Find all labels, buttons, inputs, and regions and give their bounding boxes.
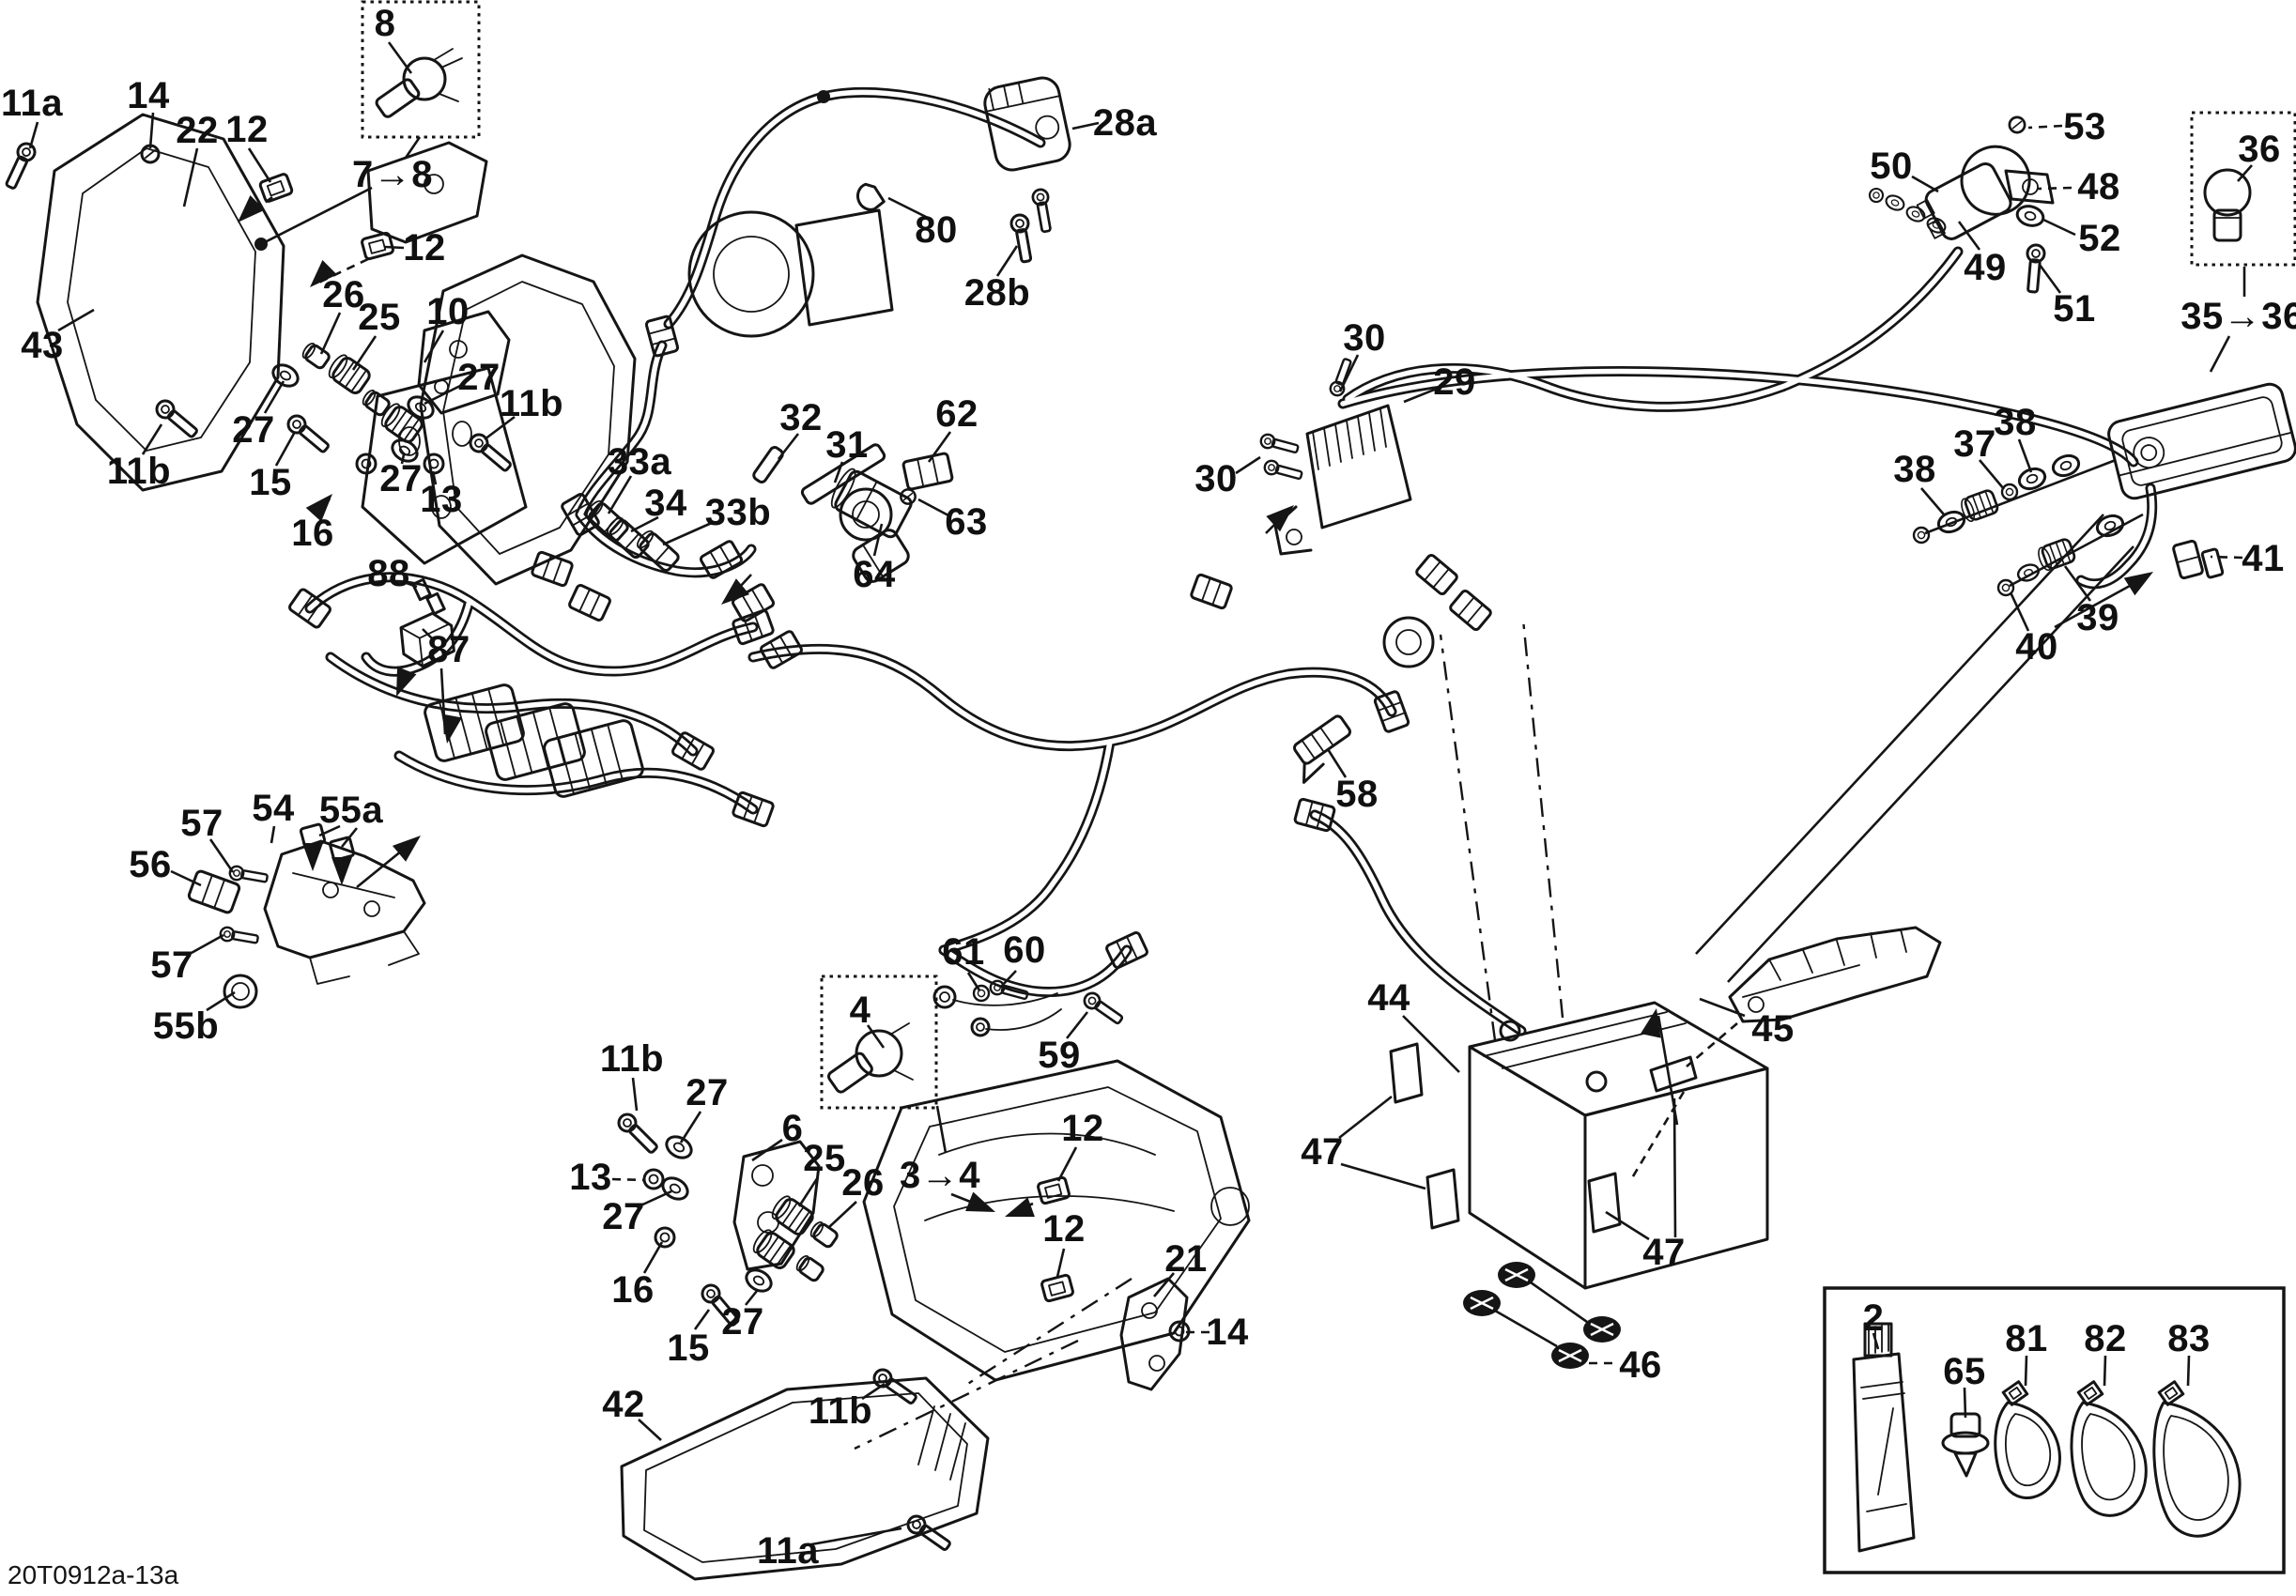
- part-callout: 12: [403, 229, 446, 267]
- part-callout: 47: [1642, 1234, 1686, 1271]
- part-callout: 10: [426, 293, 470, 330]
- callout-layer: 11a14221287→81243262510272711b11b1527131…: [0, 0, 2296, 1596]
- part-callout: 53: [2063, 108, 2106, 146]
- part-callout: 87: [427, 631, 470, 668]
- part-callout: 6: [782, 1110, 804, 1147]
- part-callout: 11a: [757, 1532, 819, 1570]
- part-callout: 88: [367, 555, 410, 592]
- part-callout: 34: [644, 484, 687, 522]
- part-callout: 33a: [608, 443, 671, 481]
- part-callout: 12: [1042, 1210, 1086, 1248]
- part-callout: 55b: [153, 1007, 219, 1045]
- part-callout: 12: [225, 111, 269, 148]
- part-callout: 33b: [705, 494, 771, 531]
- part-callout: 29: [1433, 363, 1476, 401]
- part-callout: 81: [2005, 1320, 2048, 1358]
- part-callout: 44: [1367, 979, 1410, 1017]
- part-callout: 37: [1953, 425, 1996, 463]
- part-callout: 64: [853, 556, 896, 593]
- part-callout: 2: [1863, 1299, 1885, 1337]
- part-callout: 38: [1994, 404, 2037, 441]
- parts-diagram-page: 11a14221287→81243262510272711b11b1527131…: [0, 0, 2296, 1596]
- part-callout: 15: [667, 1329, 710, 1367]
- part-callout: 32: [779, 399, 823, 437]
- part-callout: 59: [1038, 1036, 1081, 1074]
- sheet-code: 20T0912a-13a: [8, 1560, 178, 1590]
- part-callout: 28a: [1093, 104, 1157, 142]
- part-callout: 27: [457, 359, 501, 396]
- part-callout: 82: [2084, 1320, 2127, 1358]
- part-callout: 49: [1964, 249, 2007, 286]
- part-callout: 42: [602, 1386, 645, 1423]
- part-callout: 16: [611, 1271, 655, 1309]
- part-callout: 61: [942, 933, 985, 971]
- part-callout: 11b: [500, 385, 563, 422]
- part-callout: 36: [2238, 130, 2281, 168]
- part-callout: 27: [686, 1074, 729, 1112]
- part-callout: 11a: [1, 84, 63, 122]
- part-callout: 38: [1893, 451, 1936, 488]
- part-callout: 25: [803, 1140, 846, 1177]
- part-callout: 30: [1194, 460, 1238, 498]
- part-callout: 46: [1619, 1346, 1662, 1384]
- part-callout: 50: [1870, 147, 1913, 185]
- part-callout: 8: [375, 5, 396, 42]
- part-callout: 11b: [107, 453, 171, 490]
- part-callout: 4: [850, 991, 871, 1029]
- part-callout: 60: [1003, 931, 1046, 969]
- part-callout: 16: [291, 514, 334, 552]
- part-callout: 57: [150, 946, 193, 984]
- part-callout: 11b: [809, 1392, 872, 1430]
- part-callout: 56: [129, 846, 172, 883]
- part-callout: 83: [2167, 1320, 2211, 1358]
- part-callout: 11b: [600, 1040, 664, 1078]
- part-callout: 35→36: [2180, 298, 2296, 335]
- part-callout: 22: [176, 112, 219, 149]
- part-callout: 12: [1061, 1110, 1104, 1147]
- part-callout: 30: [1343, 319, 1386, 357]
- part-callout: 27: [232, 411, 275, 449]
- part-callout: 13: [420, 481, 463, 518]
- part-callout: 80: [915, 211, 958, 249]
- part-callout: 48: [2077, 168, 2120, 206]
- part-callout: 57: [180, 805, 223, 842]
- part-callout: 7→8: [352, 156, 433, 193]
- part-callout: 14: [1206, 1313, 1249, 1351]
- part-callout: 27: [379, 460, 423, 498]
- part-callout: 31: [825, 426, 869, 464]
- part-callout: 63: [945, 503, 988, 541]
- part-callout: 21: [1164, 1240, 1208, 1278]
- part-callout: 43: [21, 327, 64, 364]
- part-callout: 15: [249, 464, 292, 501]
- part-callout: 65: [1943, 1353, 1986, 1390]
- part-callout: 41: [2242, 540, 2285, 577]
- part-callout: 27: [721, 1303, 764, 1341]
- part-callout: 26: [841, 1164, 885, 1202]
- part-callout: 62: [935, 395, 978, 433]
- part-callout: 14: [127, 77, 170, 115]
- part-callout: 54: [252, 790, 295, 827]
- part-callout: 39: [2076, 599, 2119, 637]
- part-callout: 27: [602, 1198, 645, 1235]
- part-callout: 52: [2078, 220, 2121, 257]
- part-callout: 51: [2053, 290, 2096, 328]
- part-callout: 45: [1751, 1010, 1795, 1048]
- part-callout: 58: [1335, 775, 1379, 813]
- part-callout: 28b: [964, 274, 1030, 312]
- part-callout: 25: [358, 299, 401, 336]
- part-callout: 40: [2015, 628, 2058, 666]
- part-callout: 47: [1301, 1133, 1344, 1171]
- part-callout: 13: [569, 1159, 612, 1196]
- part-callout: 3→4: [900, 1157, 980, 1194]
- part-callout: 55a: [319, 791, 383, 829]
